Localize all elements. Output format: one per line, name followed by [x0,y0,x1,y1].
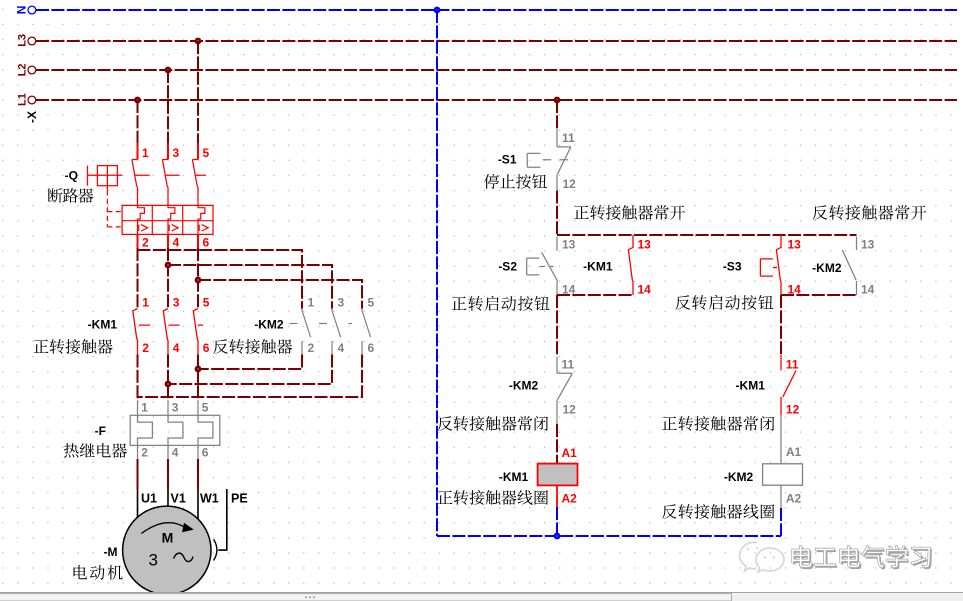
svg-text:4: 4 [338,341,345,355]
svg-text:2: 2 [142,341,149,355]
svg-text:11: 11 [562,358,575,372]
svg-text:-KM2: -KM2 [724,470,754,484]
svg-text:1: 1 [308,296,315,310]
svg-text:V1: V1 [171,492,186,506]
svg-text:-S2: -S2 [498,260,517,274]
svg-text:5: 5 [202,401,209,415]
svg-text:14: 14 [861,283,875,297]
svg-text:6: 6 [202,446,209,460]
svg-text:A2: A2 [562,492,578,506]
svg-text:5: 5 [203,296,210,310]
svg-text:-M: -M [104,545,118,559]
svg-text:M: M [162,530,174,546]
svg-text:1: 1 [142,296,149,310]
svg-text:4: 4 [172,446,179,460]
svg-text:4: 4 [173,341,180,355]
svg-text:12: 12 [563,403,577,417]
svg-text:-KM1: -KM1 [583,260,613,274]
svg-text:6: 6 [203,235,210,249]
svg-text:-KM1: -KM1 [736,379,766,393]
svg-text:3: 3 [338,296,345,310]
svg-text:-KM1: -KM1 [499,470,529,484]
svg-text:PE: PE [231,492,248,506]
svg-text:13: 13 [638,238,652,252]
svg-text:2: 2 [141,446,148,460]
svg-text:12: 12 [786,403,800,417]
svg-text:6: 6 [368,341,375,355]
svg-text:5: 5 [203,146,210,160]
svg-text:11: 11 [786,358,799,372]
svg-text:3: 3 [173,146,180,160]
svg-text:N: N [15,6,29,15]
svg-text:A1: A1 [562,446,578,460]
svg-text:U1: U1 [141,492,157,506]
svg-text:12: 12 [563,177,577,191]
svg-text:2: 2 [142,235,149,249]
svg-text:-S1: -S1 [498,153,517,167]
svg-text:-KM1: -KM1 [88,318,118,332]
svg-text:-KM2: -KM2 [254,318,284,332]
svg-text:W1: W1 [200,492,219,506]
svg-text:A1: A1 [786,445,802,459]
svg-text:-KM2: -KM2 [509,379,539,393]
svg-text:3: 3 [149,551,158,570]
svg-text:L3: L3 [17,34,29,47]
svg-text:14: 14 [638,283,652,297]
svg-text:L1: L1 [17,93,29,106]
svg-text:13: 13 [788,238,802,252]
svg-text:-Q: -Q [65,169,78,183]
svg-text:A2: A2 [786,492,802,506]
svg-text:3: 3 [173,296,180,310]
svg-text:-KM2: -KM2 [812,261,842,275]
svg-text:13: 13 [861,238,875,252]
svg-text:13: 13 [562,238,576,252]
svg-text:1: 1 [141,401,148,415]
svg-text:-F: -F [95,424,106,438]
svg-text:-S3: -S3 [723,260,742,274]
svg-text:1: 1 [142,146,149,160]
svg-text:-X: -X [25,111,39,123]
svg-text:5: 5 [368,296,375,310]
svg-text:2: 2 [308,341,315,355]
svg-text:6: 6 [203,341,210,355]
svg-text:3: 3 [172,401,179,415]
svg-text:L2: L2 [17,64,29,77]
svg-text:4: 4 [173,235,180,249]
svg-text:11: 11 [562,131,575,145]
